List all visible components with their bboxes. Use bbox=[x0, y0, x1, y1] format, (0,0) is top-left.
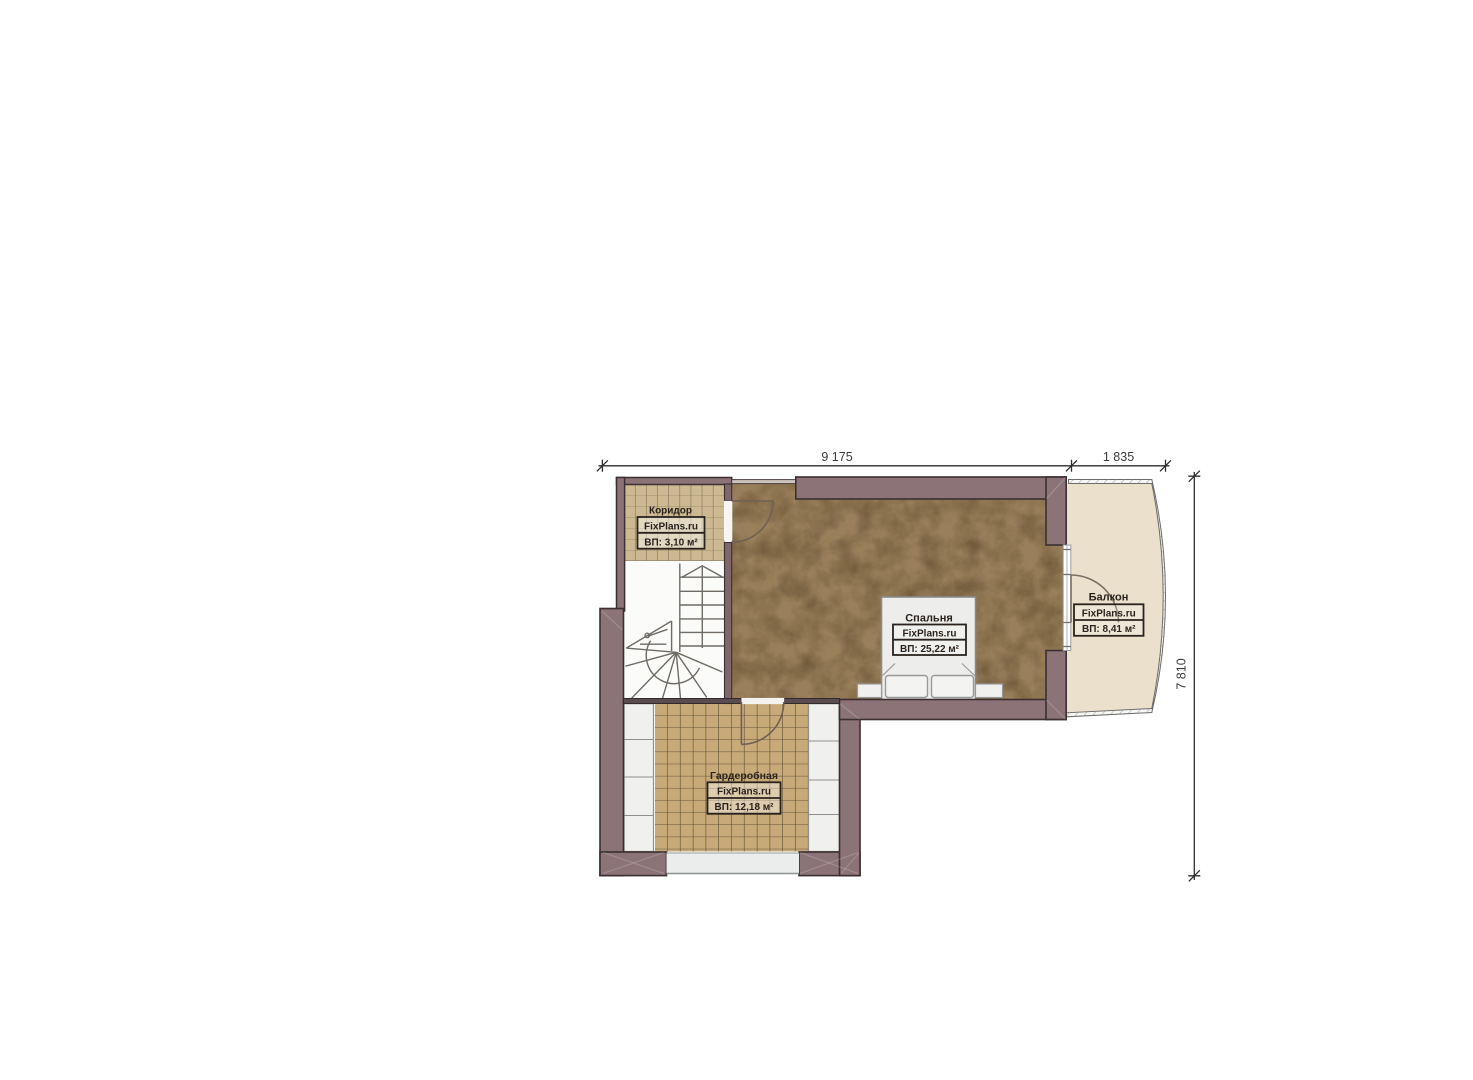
svg-text:Гардеробная: Гардеробная bbox=[710, 770, 778, 782]
svg-text:9 175: 9 175 bbox=[821, 450, 852, 464]
svg-text:FixPlans.ru: FixPlans.ru bbox=[903, 629, 957, 640]
svg-text:FixPlans.ru: FixPlans.ru bbox=[644, 522, 698, 533]
svg-text:Балкон: Балкон bbox=[1089, 591, 1129, 603]
svg-text:1 835: 1 835 bbox=[1103, 450, 1134, 464]
svg-text:FixPlans.ru: FixPlans.ru bbox=[1082, 608, 1136, 619]
svg-text:Спальня: Спальня bbox=[905, 613, 953, 625]
svg-text:ВП: 3,10 м²: ВП: 3,10 м² bbox=[644, 538, 698, 549]
svg-text:ВП: 12,18 м²: ВП: 12,18 м² bbox=[714, 802, 774, 813]
svg-text:7 810: 7 810 bbox=[1175, 658, 1189, 689]
svg-text:FixPlans.ru: FixPlans.ru bbox=[717, 787, 771, 798]
svg-text:ВП: 8,41 м²: ВП: 8,41 м² bbox=[1082, 624, 1136, 635]
svg-text:Коридор: Коридор bbox=[649, 506, 692, 517]
svg-text:ВП: 25,22 м²: ВП: 25,22 м² bbox=[900, 644, 960, 655]
